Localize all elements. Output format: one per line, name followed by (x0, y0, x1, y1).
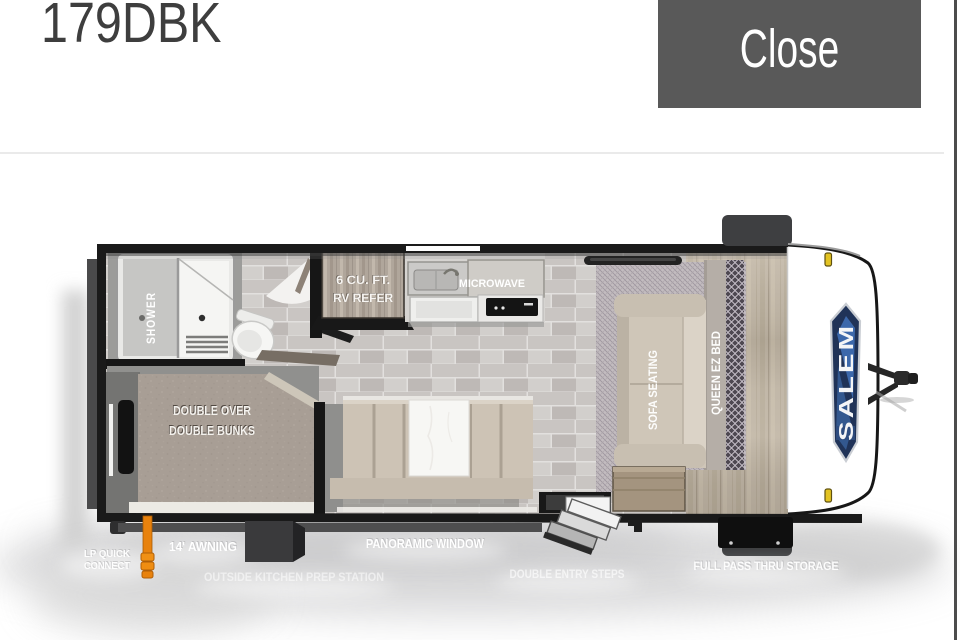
svg-text:QUEEN EZ BED: QUEEN EZ BED (711, 331, 723, 415)
svg-text:FULL PASS THRU STORAGE: FULL PASS THRU STORAGE (694, 559, 839, 573)
svg-text:RV REFER: RV REFER (333, 293, 394, 305)
svg-text:SALEM: SALEM (836, 323, 858, 441)
svg-text:LP QUICK: LP QUICK (84, 548, 130, 560)
svg-text:OUTSIDE KITCHEN PREP STATION: OUTSIDE KITCHEN PREP STATION (204, 570, 384, 584)
svg-text:DOUBLE OVER: DOUBLE OVER (173, 404, 251, 418)
svg-text:MICROWAVE: MICROWAVE (459, 278, 525, 290)
svg-text:PANORAMIC WINDOW: PANORAMIC WINDOW (366, 537, 484, 551)
svg-text:SOFA SEATING: SOFA SEATING (648, 350, 660, 430)
svg-text:DOUBLE BUNKS: DOUBLE BUNKS (169, 424, 255, 438)
svg-text:14' AWNING: 14' AWNING (169, 540, 237, 554)
svg-text:6 CU. FT.: 6 CU. FT. (336, 275, 390, 287)
svg-text:SHOWER: SHOWER (146, 292, 158, 344)
svg-text:DOUBLE ENTRY STEPS: DOUBLE ENTRY STEPS (510, 567, 625, 581)
svg-text:CONNECT: CONNECT (84, 560, 131, 572)
